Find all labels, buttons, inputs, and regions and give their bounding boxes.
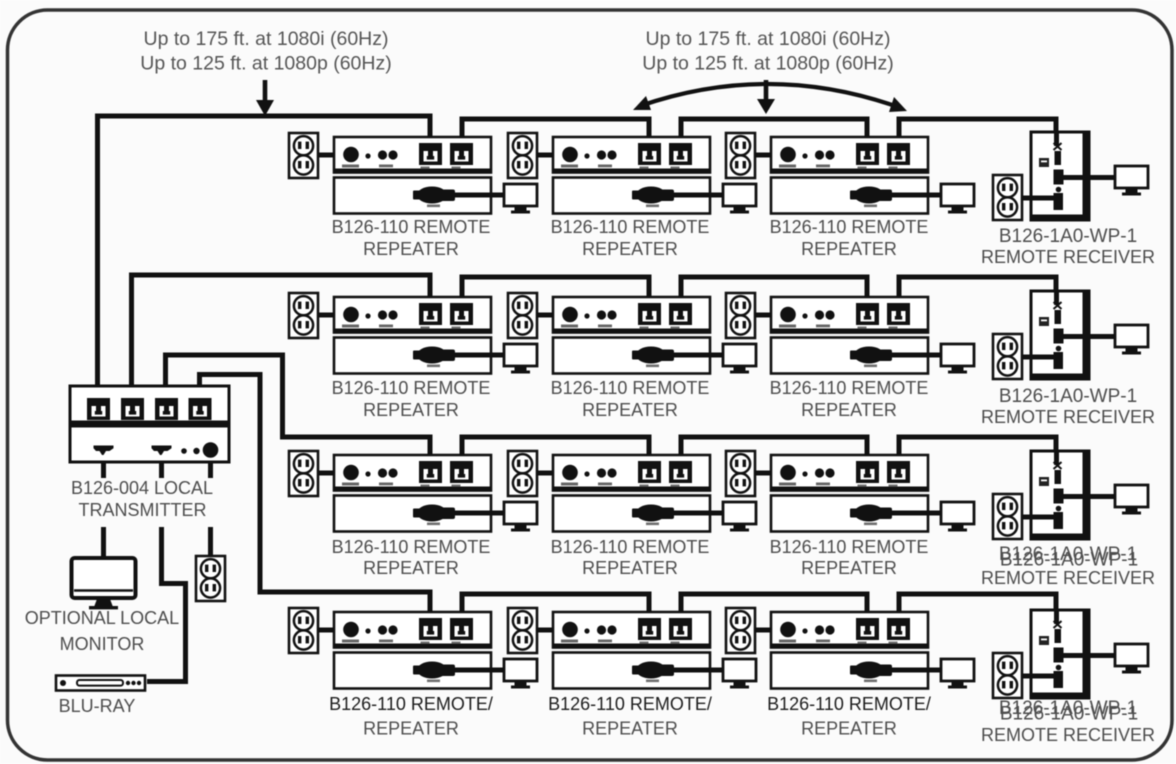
svg-text:REPEATER: REPEATER [801, 400, 897, 420]
svg-text:B126-004 LOCAL: B126-004 LOCAL [71, 478, 213, 498]
svg-text:B126-110 REMOTE: B126-110 REMOTE [770, 217, 929, 237]
svg-text:REMOTE RECEIVER: REMOTE RECEIVER [981, 407, 1155, 427]
svg-text:REPEATER: REPEATER [801, 239, 897, 259]
svg-text:B126-110 REMOTE: B126-110 REMOTE [551, 378, 710, 398]
svg-text:Up to 175 ft. at 1080i (60Hz): Up to 175 ft. at 1080i (60Hz) [646, 28, 891, 50]
svg-text:B126-110 REMOTE: B126-110 REMOTE [551, 537, 710, 557]
svg-text:OPTIONAL LOCAL: OPTIONAL LOCAL [25, 608, 179, 628]
svg-text:B126-110 REMOTE/: B126-110 REMOTE/ [329, 694, 493, 714]
svg-text:REPEATER: REPEATER [582, 400, 678, 420]
svg-text:TRANSMITTER: TRANSMITTER [79, 500, 207, 520]
svg-text:REMOTE RECEIVER: REMOTE RECEIVER [981, 247, 1155, 267]
svg-text:B126-110 REMOTE/: B126-110 REMOTE/ [767, 694, 931, 714]
svg-text:Up to 125 ft. at 1080p (60Hz): Up to 125 ft. at 1080p (60Hz) [642, 53, 893, 75]
svg-text:B126-1A0-WP-1: B126-1A0-WP-1 [999, 226, 1137, 247]
svg-text:REPEATER: REPEATER [363, 239, 459, 259]
svg-text:REPEATER: REPEATER [582, 558, 678, 578]
svg-text:REPEATER: REPEATER [363, 719, 459, 739]
svg-text:Up to 175 ft. at 1080i (60Hz): Up to 175 ft. at 1080i (60Hz) [144, 28, 389, 50]
svg-text:BLU-RAY: BLU-RAY [59, 696, 136, 716]
svg-text:REPEATER: REPEATER [801, 719, 897, 739]
svg-text:REPEATER: REPEATER [582, 719, 678, 739]
svg-text:REPEATER: REPEATER [363, 400, 459, 420]
svg-text:REMOTE RECEIVER: REMOTE RECEIVER [981, 568, 1155, 588]
svg-text:B126-1A0-WP-1: B126-1A0-WP-1 [1000, 704, 1138, 725]
svg-text:B126-110 REMOTE: B126-110 REMOTE [770, 537, 929, 557]
svg-text:REPEATER: REPEATER [363, 558, 459, 578]
svg-text:REMOTE RECEIVER: REMOTE RECEIVER [981, 725, 1155, 745]
svg-text:B126-110 REMOTE: B126-110 REMOTE [332, 217, 491, 237]
svg-text:REPEATER: REPEATER [582, 239, 678, 259]
svg-text:B126-1A0-WP-1: B126-1A0-WP-1 [999, 386, 1137, 407]
svg-text:B126-110 REMOTE: B126-110 REMOTE [770, 378, 929, 398]
svg-text:B126-110 REMOTE: B126-110 REMOTE [332, 378, 491, 398]
svg-text:Up to 125 ft. at 1080p (60Hz): Up to 125 ft. at 1080p (60Hz) [140, 53, 391, 75]
svg-text:B126-110 REMOTE: B126-110 REMOTE [551, 217, 710, 237]
svg-text:B126-110 REMOTE/: B126-110 REMOTE/ [548, 694, 712, 714]
svg-text:MONITOR: MONITOR [60, 634, 145, 654]
svg-text:REPEATER: REPEATER [801, 558, 897, 578]
svg-text:B126-110 REMOTE: B126-110 REMOTE [332, 537, 491, 557]
